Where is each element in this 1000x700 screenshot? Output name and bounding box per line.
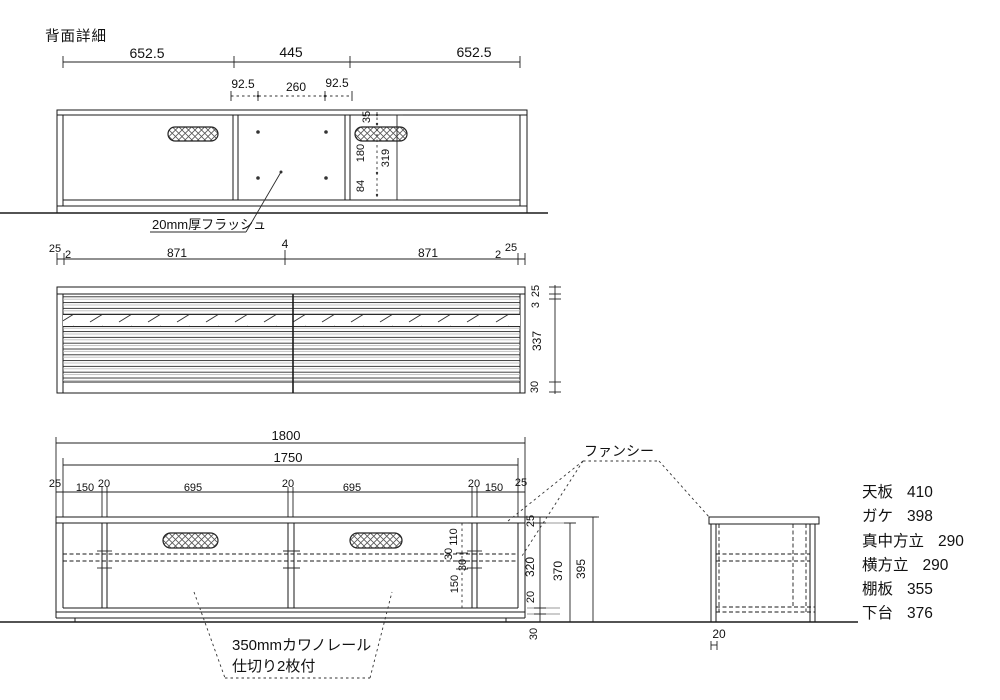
dim-r25a: 25 [49, 478, 61, 490]
rail-label-line1: 350mmカワノレール [232, 637, 371, 654]
dim-r25b: 25 [515, 477, 527, 489]
dim-35: 35 [361, 111, 373, 123]
dim-fr-25: 25 [525, 515, 537, 527]
dim-r20b: 20 [282, 478, 294, 490]
back-body [0, 110, 548, 213]
fancy-callout: ファンシー [508, 443, 710, 556]
dim-l-337: 337 [530, 331, 544, 351]
dim-r695a: 695 [184, 482, 202, 494]
back-dim-mid: 92.5 260 92.5 [231, 76, 352, 101]
screw-dot [324, 176, 328, 180]
screw-dot [324, 130, 328, 134]
part-value: 410 [907, 484, 933, 501]
louver-hatch-row [63, 315, 520, 327]
dim-r150a: 150 [76, 482, 94, 494]
dim-r20a: 20 [98, 478, 110, 490]
rail-label-line2: 仕切り2枚付 [232, 658, 315, 675]
dim-r150b: 150 [485, 482, 503, 494]
dim-4: 4 [282, 237, 289, 251]
dim-871-left: 871 [167, 246, 187, 260]
front-dim-inner: 110 30 30 150 [443, 523, 469, 608]
front-view: 1800 1750 25 150 20 695 20 [0, 428, 858, 678]
back-dim-right: 35 180 319 84 [355, 111, 403, 200]
dim-fr-395: 395 [574, 559, 588, 579]
parts-row: ガケ398 [862, 505, 964, 529]
dim-l25-left: 25 [49, 243, 61, 255]
dim-l2-right: 2 [495, 249, 501, 261]
dim-92-left: 92.5 [231, 77, 255, 91]
dim-445: 445 [279, 44, 303, 60]
screw-dot [256, 176, 260, 180]
vent-slot-front-right [350, 533, 402, 548]
dim-871-right: 871 [418, 246, 438, 260]
dim-l2-left: 2 [65, 249, 71, 261]
dim-r695b: 695 [343, 482, 361, 494]
technical-drawing-page: 背面詳細 652.5 445 [0, 0, 1000, 700]
dim-fr-370: 370 [551, 561, 565, 581]
dim-150i: 150 [449, 575, 461, 593]
dim-652-right: 652.5 [456, 44, 491, 60]
dim-319: 319 [380, 149, 392, 167]
parts-row: 棚板355 [862, 578, 964, 602]
louver-dim-top: 25 2 871 4 871 2 25 [49, 237, 525, 265]
slat-area [63, 296, 520, 382]
dim-fr-20: 20 [525, 591, 537, 603]
part-value: 376 [907, 605, 933, 622]
dim-30a: 30 [443, 548, 455, 560]
dim-260: 260 [286, 80, 306, 94]
flush-callout: 20mm厚フラッシュ [150, 171, 283, 233]
front-body [0, 517, 858, 622]
part-value: 290 [938, 533, 964, 550]
dim-l-30: 30 [529, 381, 541, 393]
back-view: 652.5 445 652.5 92.5 260 92.5 [0, 44, 548, 232]
parts-row: 真中方立290 [862, 530, 964, 554]
dim-84: 84 [355, 180, 367, 192]
side-view: 20 [709, 517, 819, 650]
rail-callout: 350mmカワノレール 仕切り2枚付 [194, 592, 392, 678]
parts-row: 天板410 [862, 481, 964, 505]
back-dim-top: 652.5 445 652.5 [63, 44, 520, 68]
dim-side-20: 20 [712, 627, 726, 641]
part-name: 横方立 [862, 557, 909, 574]
parts-row: 下台376 [862, 602, 964, 626]
louver-view: 25 2 871 4 871 2 25 [49, 237, 561, 394]
dim-92-right: 92.5 [325, 76, 349, 90]
front-dim-row: 25 150 20 695 20 695 20 150 25 [49, 477, 527, 517]
louver-dim-right: 25 3 337 30 [529, 285, 561, 394]
dim-652-left: 652.5 [129, 45, 164, 61]
part-value: 355 [907, 581, 933, 598]
parts-row: 横方立290 [862, 554, 964, 578]
parts-list: 天板410 ガケ398 真中方立290 横方立290 棚板355 下台376 [862, 481, 964, 627]
flush-label: 20mm厚フラッシュ [152, 217, 266, 232]
front-dim-1800: 1800 [56, 428, 525, 517]
fancy-label: ファンシー [584, 443, 654, 459]
dim-1750: 1750 [274, 450, 303, 465]
dim-l-3: 3 [530, 302, 542, 308]
part-name: 棚板 [862, 581, 893, 598]
side-dim-20: 20 [711, 627, 726, 650]
part-name: ガケ [862, 508, 893, 525]
dim-fr-320: 320 [523, 557, 537, 577]
dim-l25-right: 25 [505, 242, 517, 254]
dim-110: 110 [448, 528, 460, 546]
dim-fr-30: 30 [528, 628, 540, 640]
part-name: 下台 [862, 605, 893, 622]
dim-1800: 1800 [272, 428, 301, 443]
drawing-canvas: 652.5 445 652.5 92.5 260 92.5 [0, 0, 1000, 700]
louver-body [57, 287, 525, 393]
dim-180: 180 [355, 144, 367, 162]
vent-slot-front-left [163, 533, 218, 548]
part-name: 真中方立 [862, 533, 924, 550]
dim-30b: 30 [457, 559, 469, 571]
part-name: 天板 [862, 484, 893, 501]
vent-slot-back-left [168, 127, 218, 141]
screw-dot [256, 130, 260, 134]
dim-l-25: 25 [530, 285, 542, 297]
vent-slot-back-right [355, 127, 407, 141]
part-value: 290 [923, 557, 949, 574]
dim-r20c: 20 [468, 478, 480, 490]
part-value: 398 [907, 508, 933, 525]
